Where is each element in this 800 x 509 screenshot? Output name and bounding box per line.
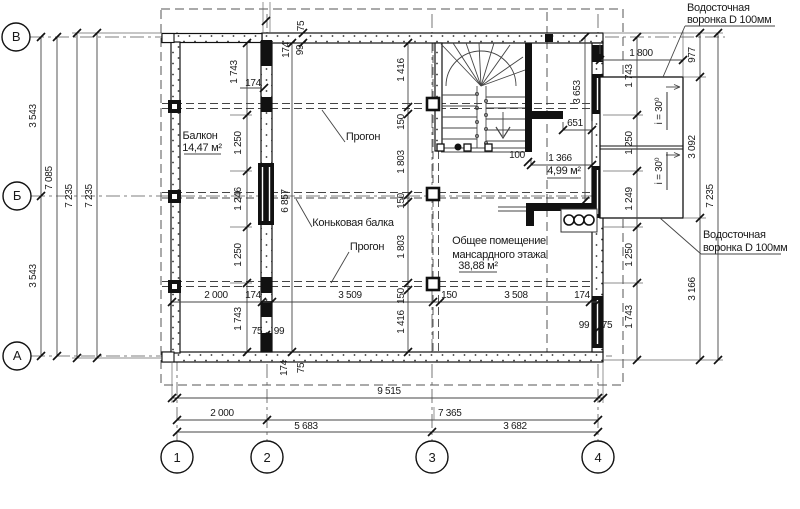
dim: 1 366 <box>548 153 572 164</box>
stair-direction-arrow <box>496 112 510 138</box>
dim: 174 <box>281 41 292 58</box>
room-name: Общее помещение <box>452 235 546 247</box>
dim: 5 683 <box>294 421 318 432</box>
note-drain: воронка D 100мм <box>703 242 787 254</box>
dim: 150 <box>441 290 458 301</box>
dim: 75 <box>602 320 613 331</box>
dim: 174 <box>574 290 591 301</box>
axis-number-1: 1 <box>174 450 181 465</box>
dim: 75 <box>296 362 307 373</box>
dim: 7 235 <box>84 184 95 208</box>
axis-number-2: 2 <box>264 450 271 465</box>
room-area: 4,99 м² <box>547 165 581 177</box>
note-drain: воронка D 100мм <box>687 14 771 26</box>
dim: 150 <box>396 113 407 130</box>
axis-letter-v: В <box>12 29 20 44</box>
note-purlin: Прогон <box>350 241 385 253</box>
floor-plan-drawing: ВБА12343 5433 5437 0857 2357 2351 7431 2… <box>0 0 800 509</box>
dim: 150 <box>396 192 407 209</box>
dim: 1 246 <box>233 187 244 211</box>
text-labels: ВБА12343 5433 5437 0857 2357 2351 7431 2… <box>12 2 788 465</box>
dim: 1 416 <box>396 58 407 82</box>
floor-plan-page: План мансардного этажа <box>0 0 800 509</box>
note-ridge-beam: Коньковая балка <box>312 217 395 229</box>
axis-letter-a: А <box>13 348 22 363</box>
stair-right-wall <box>525 43 532 152</box>
dim: 100 <box>509 150 526 161</box>
dim: 1 743 <box>624 64 635 88</box>
room-area: 14,47 м² <box>182 142 222 154</box>
dim: 75 <box>296 20 307 31</box>
dim: 1 250 <box>233 243 244 267</box>
dim: 651 <box>567 118 584 129</box>
dim: 3 509 <box>338 290 362 301</box>
axis-letter-b: Б <box>13 188 21 203</box>
dim: 1 803 <box>396 235 407 259</box>
dim: 99 <box>579 320 590 331</box>
small-room-wall-stub <box>526 203 534 226</box>
dim: 1 743 <box>233 307 244 331</box>
dim: 3 166 <box>687 277 698 301</box>
dim: 7 365 <box>438 408 462 419</box>
dim: 2 000 <box>204 290 228 301</box>
dim: 3 092 <box>687 135 698 159</box>
note-purlin: Прогон <box>346 131 381 143</box>
stair <box>437 43 525 152</box>
dim: 174 <box>279 359 290 376</box>
dim: 3 543 <box>28 264 39 288</box>
dim: 1 250 <box>624 243 635 267</box>
dim: 7 235 <box>64 184 75 208</box>
dim: 99 <box>295 44 306 55</box>
dim: 9 515 <box>377 386 401 397</box>
dim: 150 <box>396 287 407 304</box>
dim: 3 653 <box>572 80 583 104</box>
dim: 1 249 <box>624 187 635 211</box>
dim: 977 <box>687 46 698 63</box>
dim: 1 800 <box>629 48 653 59</box>
axis-number-3: 3 <box>429 450 436 465</box>
dim: 1 803 <box>396 150 407 174</box>
note-slope: i = 30⁰ <box>654 157 665 184</box>
stair-winder-fan <box>441 43 525 86</box>
note-drain: Водосточная <box>687 2 750 14</box>
stair-post-dot <box>455 144 462 151</box>
dim: 99 <box>274 326 285 337</box>
dim: 6 857 <box>280 189 291 213</box>
room-area: 38,88 м² <box>458 260 498 272</box>
note-drain: Водосточная <box>703 229 766 241</box>
dim: 7 235 <box>705 184 716 208</box>
room-name: Балкон <box>182 130 217 142</box>
dim: 1 416 <box>396 310 407 334</box>
dim: 75 <box>252 326 263 337</box>
dim: 1 743 <box>624 305 635 329</box>
dim: 174 <box>245 290 262 301</box>
dim: 3 508 <box>504 290 528 301</box>
dim: 3 682 <box>503 421 527 432</box>
pipe-risers <box>561 209 597 232</box>
small-room-top-wall <box>532 111 563 119</box>
drain-box <box>600 77 683 218</box>
dim: 1 743 <box>229 60 240 84</box>
dim: 1 250 <box>624 131 635 155</box>
axis-number-4: 4 <box>595 450 602 465</box>
dim: 2 000 <box>210 408 234 419</box>
balcony-top-wall <box>162 34 262 43</box>
dim: 174 <box>245 78 262 89</box>
dim: 7 085 <box>44 166 55 190</box>
bottom-wall <box>162 352 603 362</box>
dim: 1 250 <box>233 131 244 155</box>
note-slope: i = 30⁰ <box>654 97 665 124</box>
dim: 3 543 <box>28 104 39 128</box>
